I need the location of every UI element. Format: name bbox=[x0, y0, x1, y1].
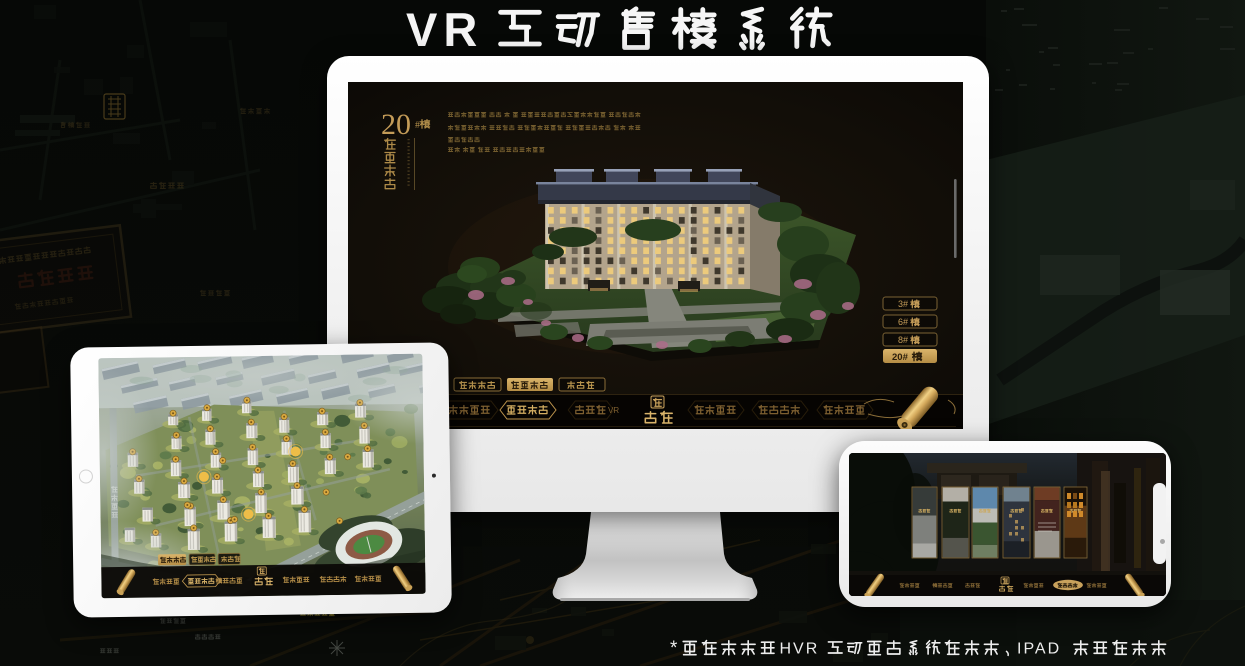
svg-text:HVR: HVR bbox=[780, 641, 820, 658]
svg-text:VR: VR bbox=[406, 3, 483, 56]
svg-text:*: * bbox=[670, 638, 678, 659]
svg-text:8#: 8# bbox=[898, 335, 908, 345]
svg-text:20: 20 bbox=[381, 108, 411, 141]
svg-text:VR: VR bbox=[608, 406, 619, 415]
svg-text:IPAD: IPAD bbox=[1017, 641, 1061, 658]
svg-text:6#: 6# bbox=[898, 317, 908, 327]
svg-text:3#: 3# bbox=[898, 299, 908, 309]
svg-text:#: # bbox=[415, 120, 420, 131]
svg-text:20#: 20# bbox=[892, 352, 909, 363]
